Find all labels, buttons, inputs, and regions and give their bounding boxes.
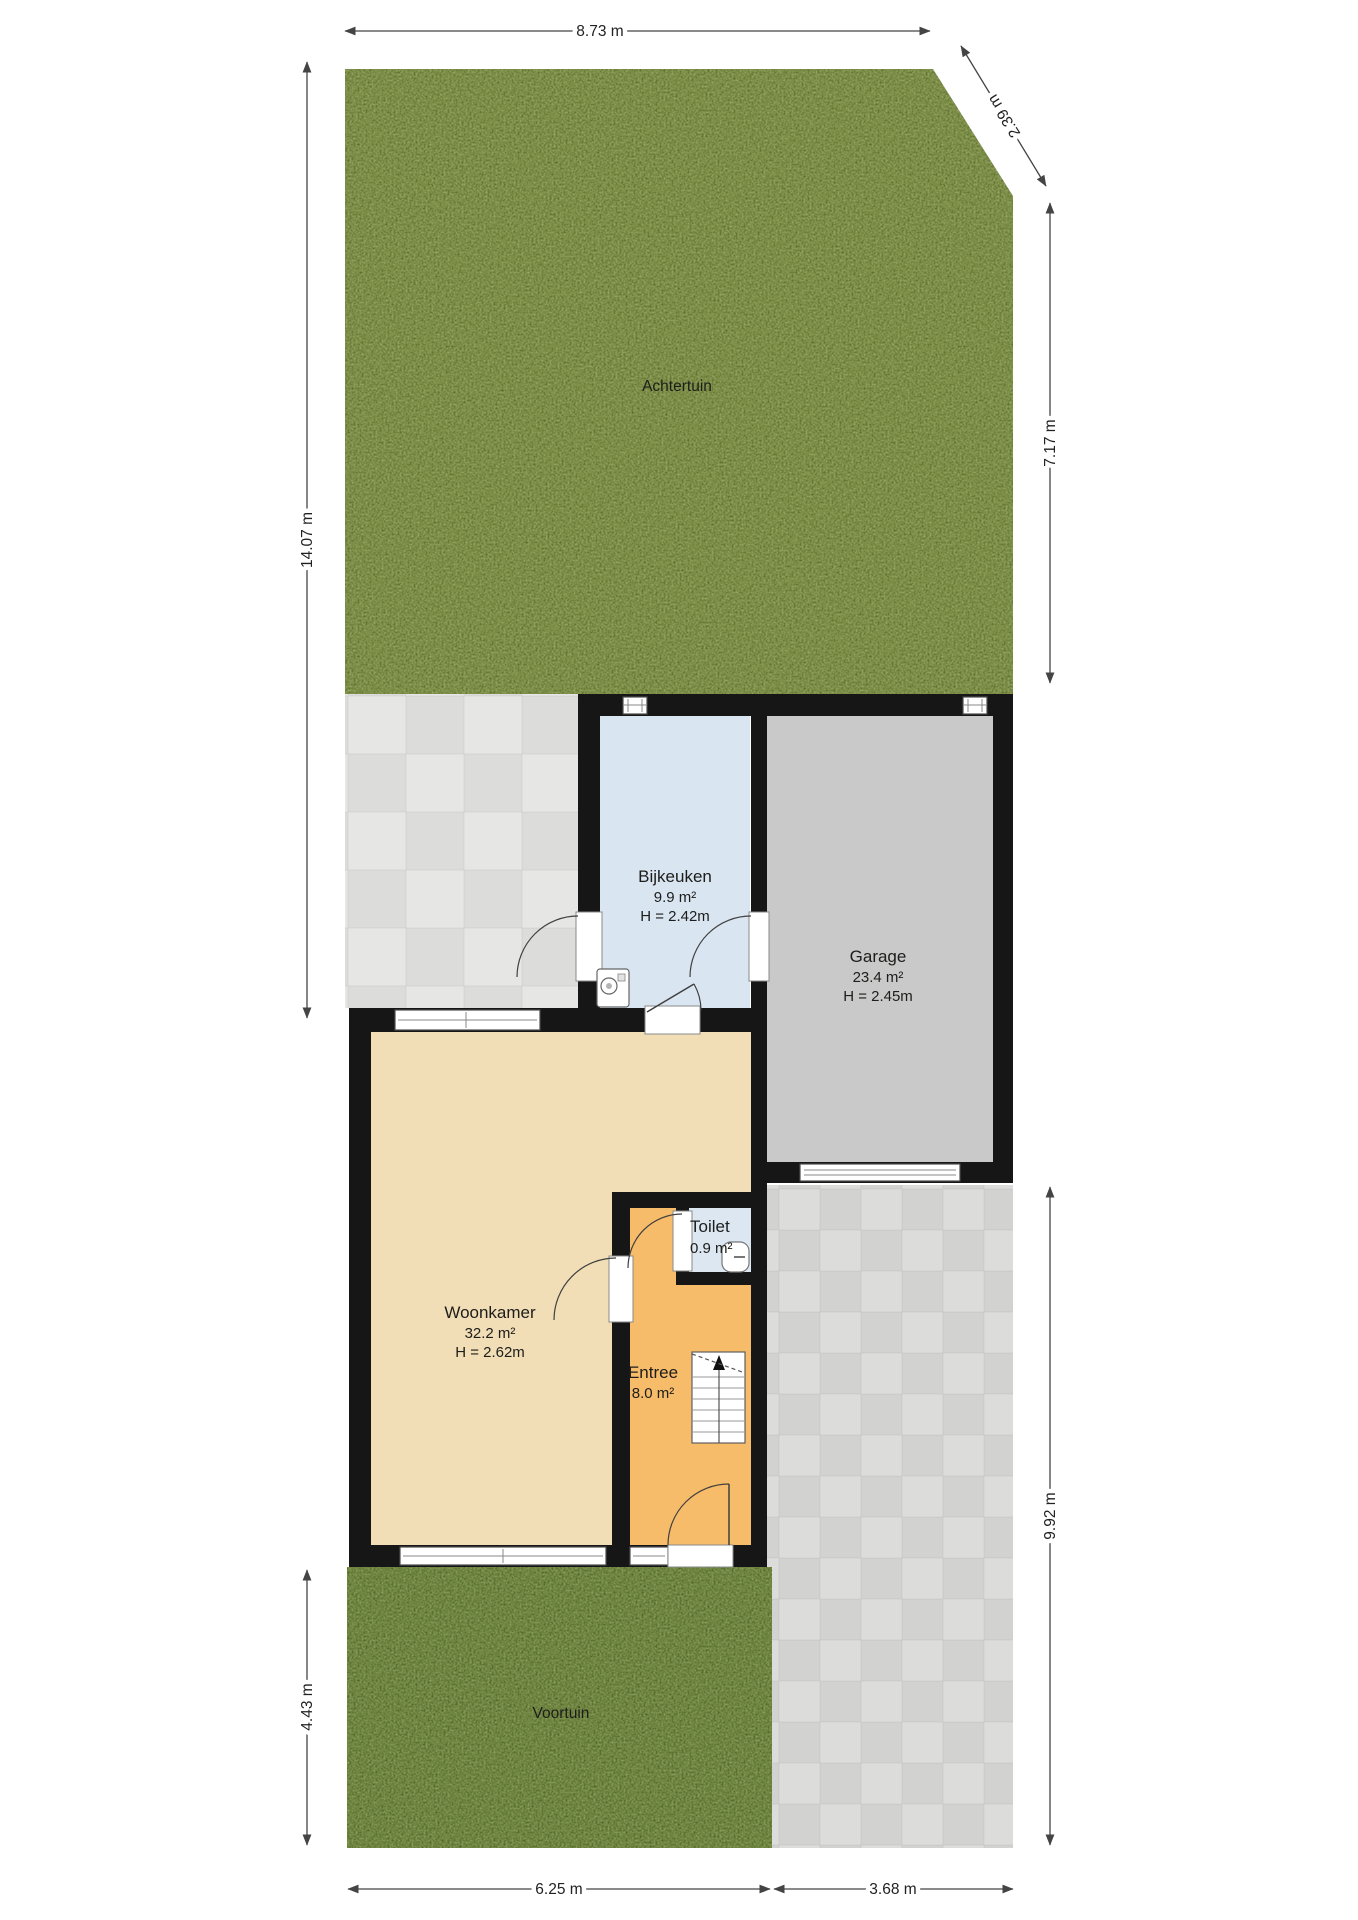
label-achtertuin: Achtertuin: [642, 378, 712, 395]
room-bijkeuken-floor: [600, 716, 750, 1008]
wall-garage-right: [993, 694, 1013, 1183]
dim-label-left-upper: 14.07 m: [299, 512, 316, 568]
wall-main-left: [349, 1008, 371, 1567]
boiler-icon: [597, 969, 629, 1007]
patio-tile-grid: [345, 694, 578, 1008]
label-voortuin: Voortuin: [533, 1705, 590, 1722]
label-garage-height: H = 2.45m: [843, 988, 913, 1005]
room-garage-floor: [767, 716, 993, 1162]
window-entree-front: [630, 1547, 668, 1565]
dim-label-right-upper: 7.17 m: [1042, 419, 1059, 466]
label-entree-name: Entree: [628, 1363, 678, 1382]
wall-toilet-bottom: [676, 1272, 767, 1285]
label-bijkeuken-height: H = 2.42m: [640, 908, 710, 925]
garage-door: [800, 1164, 960, 1181]
window-bijkeuken-rear: [623, 697, 647, 714]
floorplan-page: Achtertuin Voortuin Bijkeuken 9.9 m² H =…: [0, 0, 1358, 1920]
window-garage-rear: [963, 697, 987, 714]
staircase: [692, 1352, 745, 1443]
dim-label-bottom-left: 6.25 m: [535, 1881, 582, 1898]
window-woonkamer-front: [400, 1547, 606, 1565]
dim-label-top: 8.73 m: [576, 23, 623, 40]
label-woonkamer-name: Woonkamer: [444, 1303, 536, 1322]
label-garage-area: 23.4 m²: [853, 969, 904, 986]
driveway-tile-grid: [767, 1185, 1013, 1848]
label-woonkamer-area: 32.2 m²: [465, 1325, 516, 1342]
dim-label-diagonal: 2.39 m: [985, 91, 1025, 140]
label-bijkeuken-area: 9.9 m²: [654, 889, 697, 906]
wall-main-right: [751, 1032, 767, 1567]
label-garage-name: Garage: [850, 947, 907, 966]
dim-label-right-lower: 9.92 m: [1042, 1492, 1059, 1539]
dim-label-bottom-right: 3.68 m: [869, 1881, 916, 1898]
label-woonkamer-height: H = 2.62m: [455, 1344, 525, 1361]
window-woonkamer-rear: [395, 1010, 540, 1030]
label-entree-area: 8.0 m²: [632, 1385, 675, 1402]
dim-label-left-lower: 4.43 m: [299, 1683, 316, 1730]
floorplan-canvas: Achtertuin Voortuin Bijkeuken 9.9 m² H =…: [0, 0, 1358, 1920]
label-toilet-name: Toilet: [690, 1217, 730, 1236]
label-bijkeuken-name: Bijkeuken: [638, 867, 712, 886]
wall-entree-top: [612, 1192, 767, 1208]
label-toilet-area: 0.9 m²: [690, 1240, 733, 1257]
